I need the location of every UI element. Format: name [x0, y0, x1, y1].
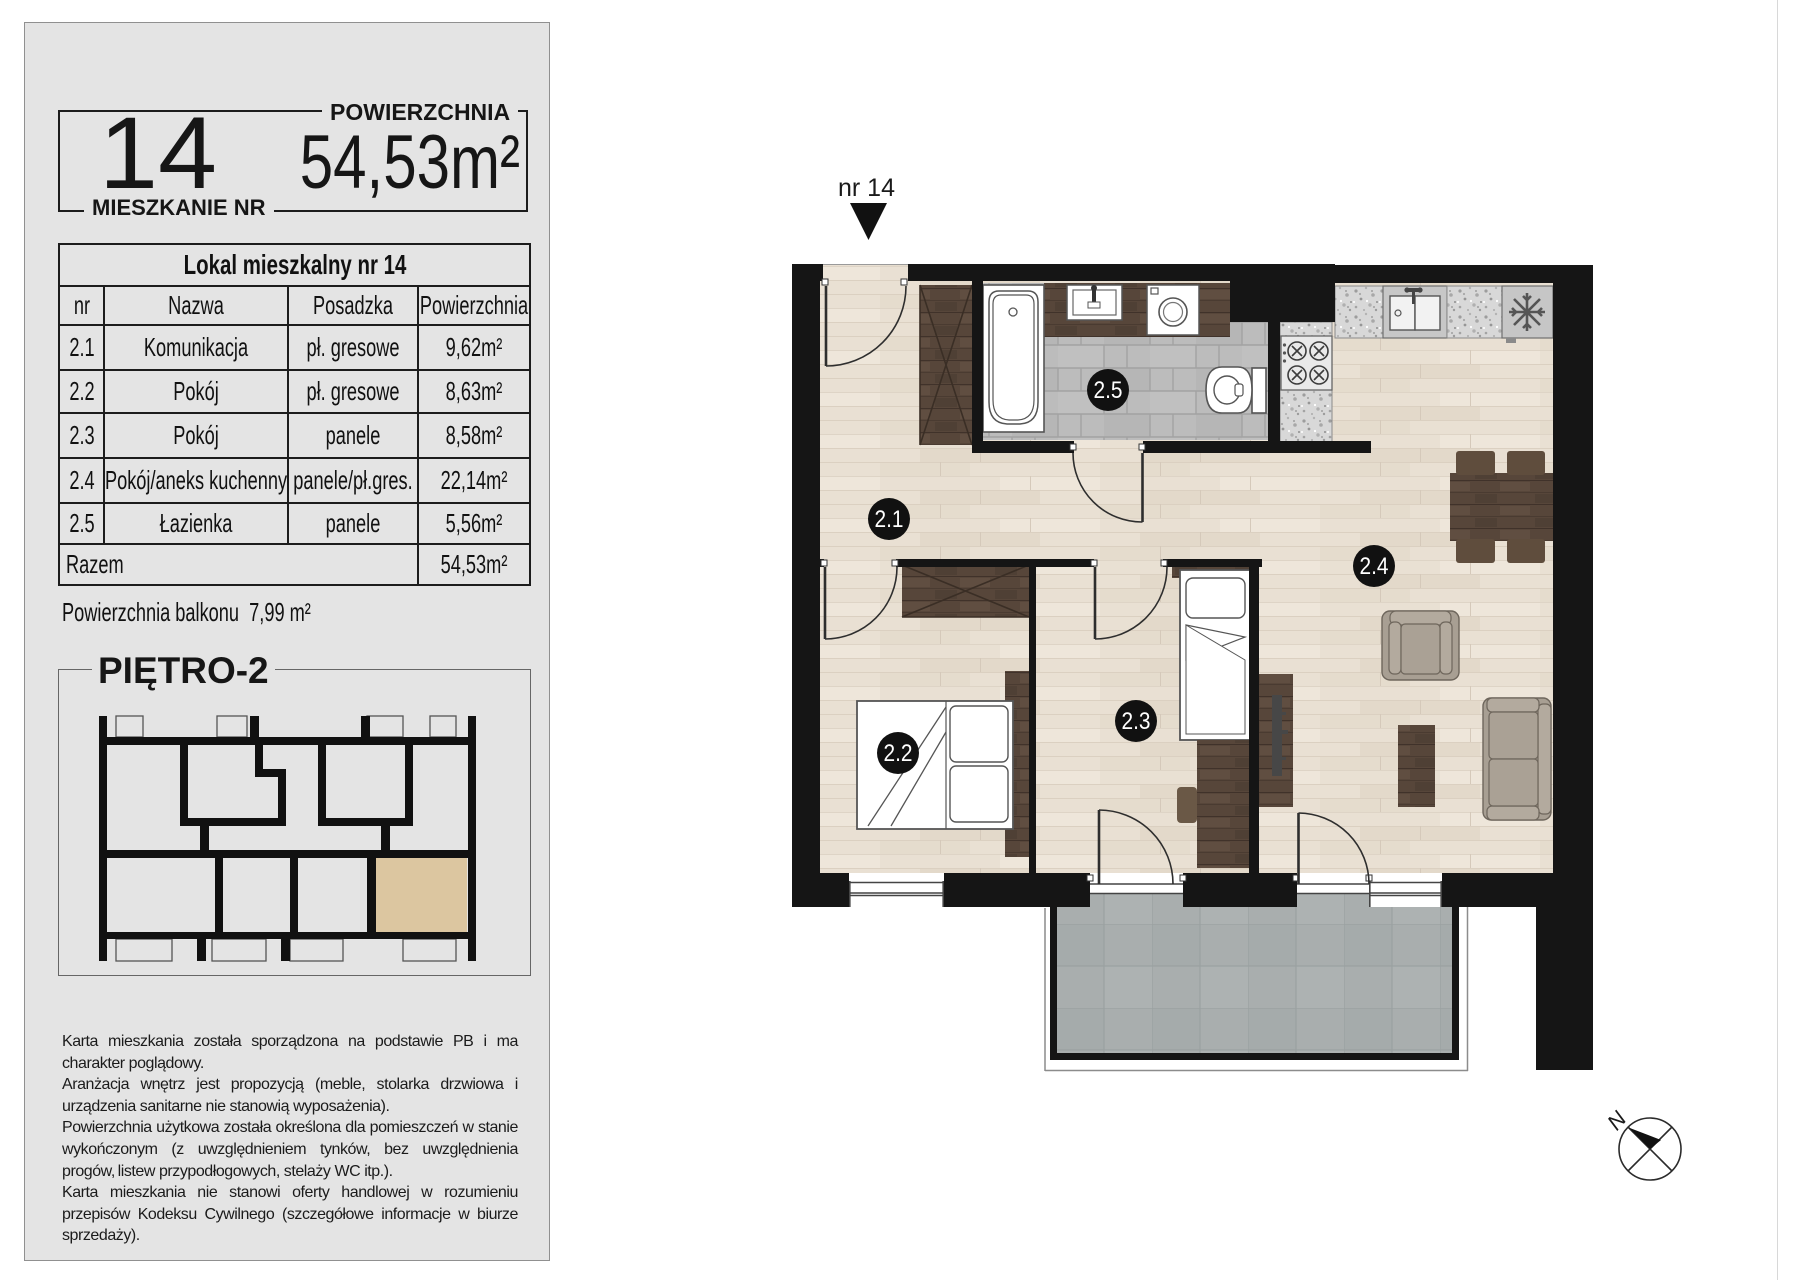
svg-text:nr 14: nr 14: [838, 174, 895, 202]
svg-text:2.3: 2.3: [1122, 708, 1151, 735]
svg-text:2.5: 2.5: [1094, 377, 1123, 404]
svg-text:2.2: 2.2: [884, 740, 913, 767]
svg-text:2.4: 2.4: [1360, 553, 1389, 580]
svg-text:2.1: 2.1: [875, 506, 904, 533]
